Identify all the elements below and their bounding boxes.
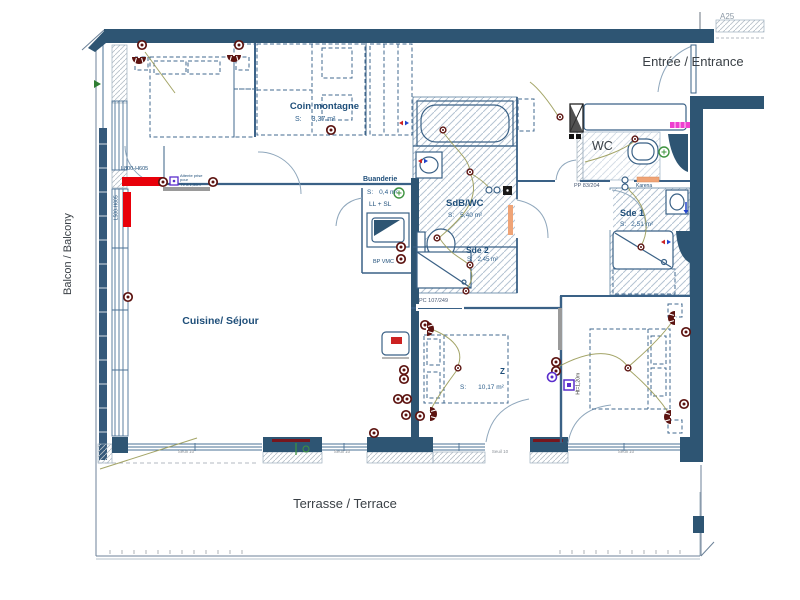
bp-vmc-label: BP VMC [373,259,394,265]
karena-label: Karena [636,184,652,190]
karena-radiator [637,177,659,182]
threshold-label: Seuil 10 [480,450,520,455]
towel-radiator-magenta [670,122,690,128]
radiator-horizontal [122,177,163,186]
area-prefix: S: [467,257,473,264]
living-room-label: Cuisine/ Séjour [158,316,283,328]
sde1-area: S: 2,51 m² [620,221,653,228]
towel-radiator-vertical [508,205,513,235]
area-prefix: S: [460,384,466,391]
threshold-label: Seuil 10 [166,450,206,455]
coin-montagne-area: S: 3,37 m² [295,116,335,124]
sde2-area: S: 2,45 m² [467,257,498,264]
balcony-railing [99,44,107,460]
threshold-label: Seuil 10 [322,450,362,455]
area-value: 10,17 m² [478,384,504,391]
sde2-label: Sde 2 [466,246,489,255]
floor-plan: A25 Entrée / Entrance Balcon / Balcony T… [0,0,800,600]
door-pc-label: PC 107/249 [419,298,448,304]
tv-note: Attente prise pour TV à 1,30m [180,174,210,187]
coin-montagne-label: Coin montagne [272,102,377,112]
area-prefix: S: [295,116,302,124]
buanderie-area: S: 0,4 m² [367,189,398,196]
tv-note-line2: TV à 1,30m [180,183,210,187]
sdb-wc-label: SdB/WC [446,199,483,209]
area-value: 3,37 m² [312,116,336,124]
area-value: 2,45 m² [478,257,498,264]
bedroom-zone-marker: Z [500,368,505,377]
balcony-label: Balcon / Balcony [62,172,74,336]
threshold-label: Seuil 10 [606,450,646,455]
radiator-v-label: L500-H605 [114,178,120,238]
radiator-vertical [123,192,131,227]
sdb-wc-area: S: 5,40 m² [448,212,482,219]
height-note-label: Ht=1,20m [576,354,582,414]
sde1-label: Sde 1 [620,209,644,219]
wall-gray-segment [558,308,562,350]
dimension-ticks [110,550,680,554]
buanderie-appliances: LL + SL [369,201,391,208]
area-value: 2,51 m² [631,221,653,228]
entrance-label: Entrée / Entrance [628,55,758,69]
area-prefix: S: [367,189,373,196]
area-prefix: S: [448,212,454,219]
area-value: 0,4 m² [379,189,397,196]
bedroom-area: S: 10,17 m² [460,384,504,391]
door-pp-label: PP 83/204 [574,183,600,189]
radiator-h-label: L800-H605 [121,166,148,172]
terrace-label: Terrasse / Terrace [280,497,410,511]
wc-label: WC [592,140,613,154]
area-prefix: S: [620,221,626,228]
sheet-ref-label: A25 [720,13,734,22]
area-value: 5,40 m² [460,212,482,219]
buanderie-label: Buanderie [363,176,397,184]
